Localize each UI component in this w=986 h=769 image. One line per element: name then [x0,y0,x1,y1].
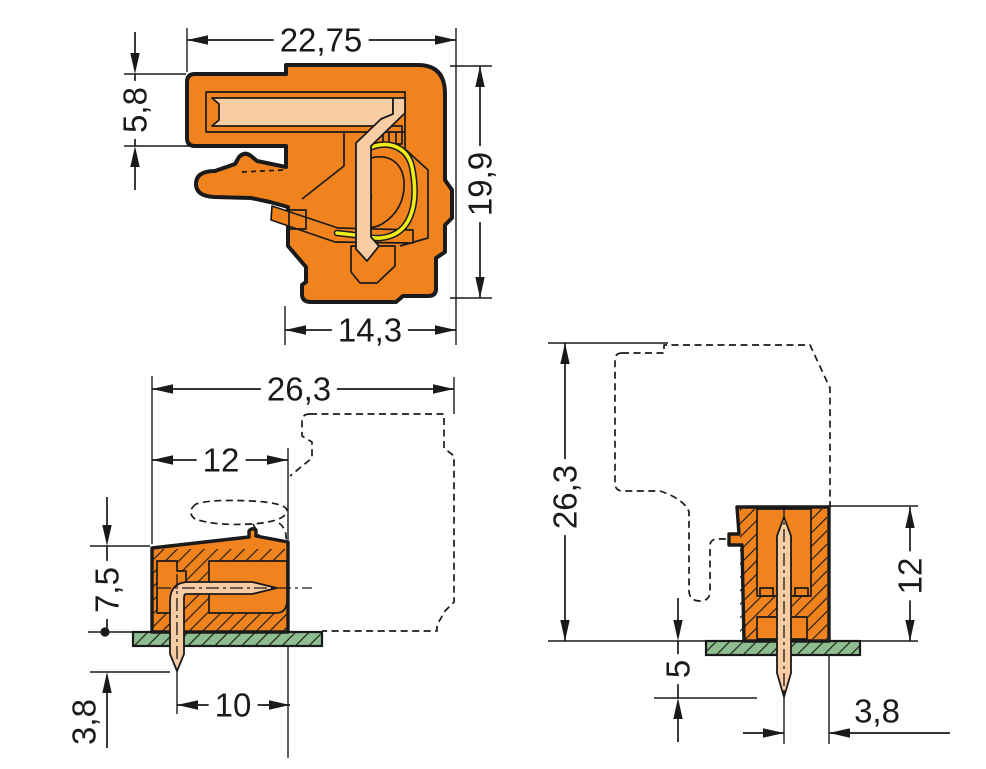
dim-label-pin-to-edge: 3,8 [848,694,906,729]
arrowhead [285,325,306,334]
dim-pin-to-edge [743,728,950,737]
arrowhead [435,325,456,334]
arrowhead [269,700,290,709]
arrowhead [763,728,784,737]
dim-label-total-height-front: 26,3 [548,459,583,535]
view-angled-section [124,28,492,345]
dim-pin-below-pcb [102,672,111,748]
arrowhead [673,698,682,719]
arrowhead [102,525,111,546]
arrowhead [673,620,682,641]
dim-label-header-height: 12 [893,552,928,601]
arrowhead [475,66,484,87]
latch-outline [191,500,287,524]
dim-label-pin-to-face: 10 [209,688,258,723]
arrowhead [267,455,288,464]
arrowhead [187,35,208,44]
arrowhead [905,507,914,528]
dim-label-total-height: 19,9 [463,146,498,222]
pcb-hatch [133,632,322,646]
arrowhead [130,53,139,74]
arrowhead [102,672,111,693]
technical-drawing-page: 22,75 5,8 19,9 14,3 26,3 12 7,5 3,8 10 2… [0,0,986,769]
dim-label-header-depth: 12 [197,443,246,478]
mating-connector-outline [290,414,312,476]
dim-label-height-above-pcb: 7,5 [90,561,125,619]
arrowhead [152,384,173,393]
dim-label-pin-below-pcb-front: 5 [661,654,696,684]
cavity-step [760,588,773,596]
cavity-step [795,588,808,596]
dim-label-total-depth: 26,3 [261,372,337,407]
dim-label-entry-height: 5,8 [118,81,153,139]
mating-connector-outline [615,353,728,601]
arrowhead [130,146,139,167]
arrowhead [829,728,850,737]
dim-label-pin-below-pcb-side: 3,8 [67,693,102,751]
arrowhead [177,700,198,709]
arrowhead [560,343,569,364]
arrowhead [905,620,914,641]
view-front-on-pcb [548,343,950,744]
reference-dot [100,627,109,636]
arrowhead [435,35,456,44]
arrowhead [475,277,484,298]
dim-label-body-width: 14,3 [332,313,408,348]
arrowhead [560,620,569,641]
mating-connector-outline [622,345,830,507]
mating-connector-outline [310,414,454,631]
view-side-on-pcb [88,376,454,758]
arrowhead [433,384,454,393]
contact-bus-bar [212,98,393,126]
arrowhead [152,455,173,464]
dim-label-total-width: 22,75 [274,23,369,58]
